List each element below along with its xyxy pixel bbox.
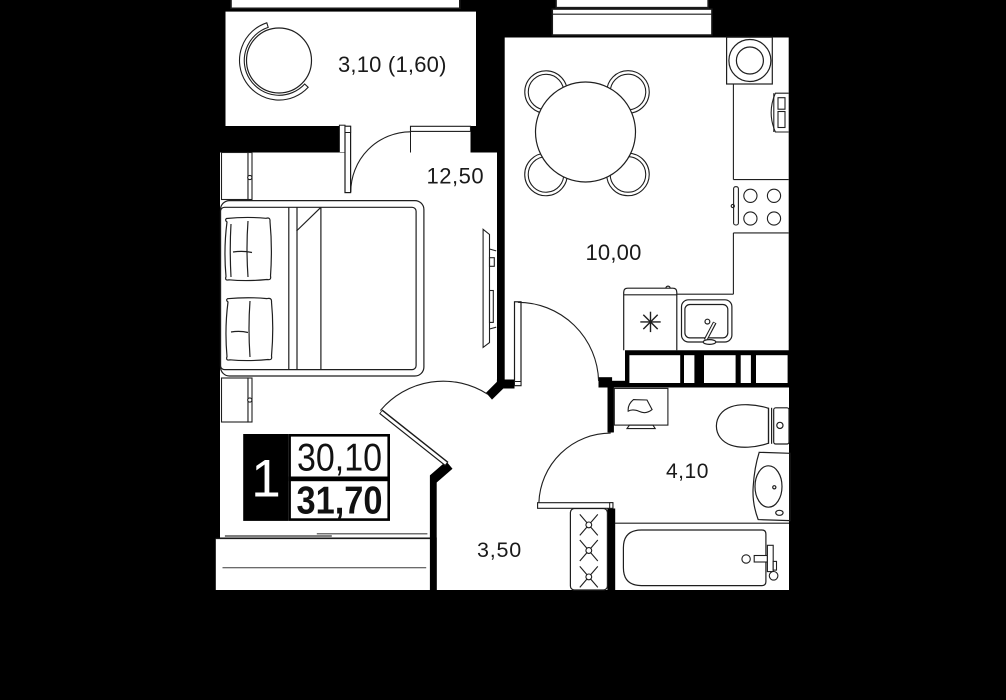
svg-text:3,50: 3,50 [477,538,522,562]
svg-text:31,70: 31,70 [297,480,383,523]
svg-text:30,10: 30,10 [297,437,382,480]
svg-text:4,10: 4,10 [666,460,709,483]
svg-text:3,10 (1,60): 3,10 (1,60) [338,52,447,77]
svg-text:10,00: 10,00 [586,240,642,265]
svg-text:12,50: 12,50 [427,164,485,189]
svg-text:1: 1 [251,450,280,509]
